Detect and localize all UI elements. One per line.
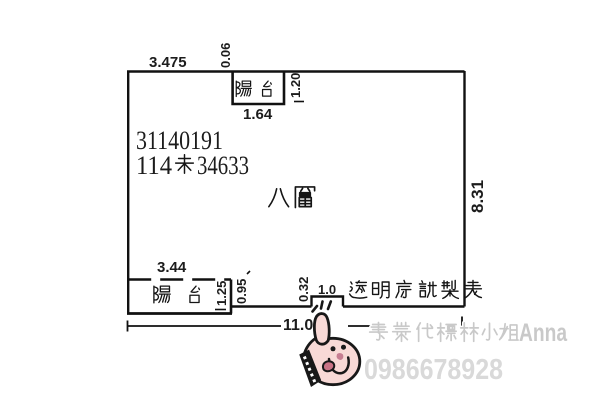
svg-text:3.475: 3.475 — [149, 54, 187, 71]
svg-text:11.0: 11.0 — [283, 317, 313, 334]
svg-text:0.06: 0.06 — [218, 43, 233, 68]
svg-text:0.32: 0.32 — [296, 277, 311, 302]
svg-text:0986678928: 0986678928 — [364, 354, 503, 386]
svg-text:34633: 34633 — [197, 151, 249, 180]
svg-text:1.0: 1.0 — [318, 282, 336, 297]
svg-text:8.31: 8.31 — [468, 180, 487, 213]
svg-text:1.20: 1.20 — [288, 73, 303, 98]
svg-text:3.44: 3.44 — [157, 259, 187, 276]
svg-text:0.95: 0.95 — [234, 279, 249, 304]
svg-text:1.64: 1.64 — [243, 106, 273, 123]
svg-text:Anna: Anna — [519, 319, 568, 347]
svg-text:114: 114 — [136, 151, 172, 180]
svg-text:1.25: 1.25 — [214, 281, 229, 306]
